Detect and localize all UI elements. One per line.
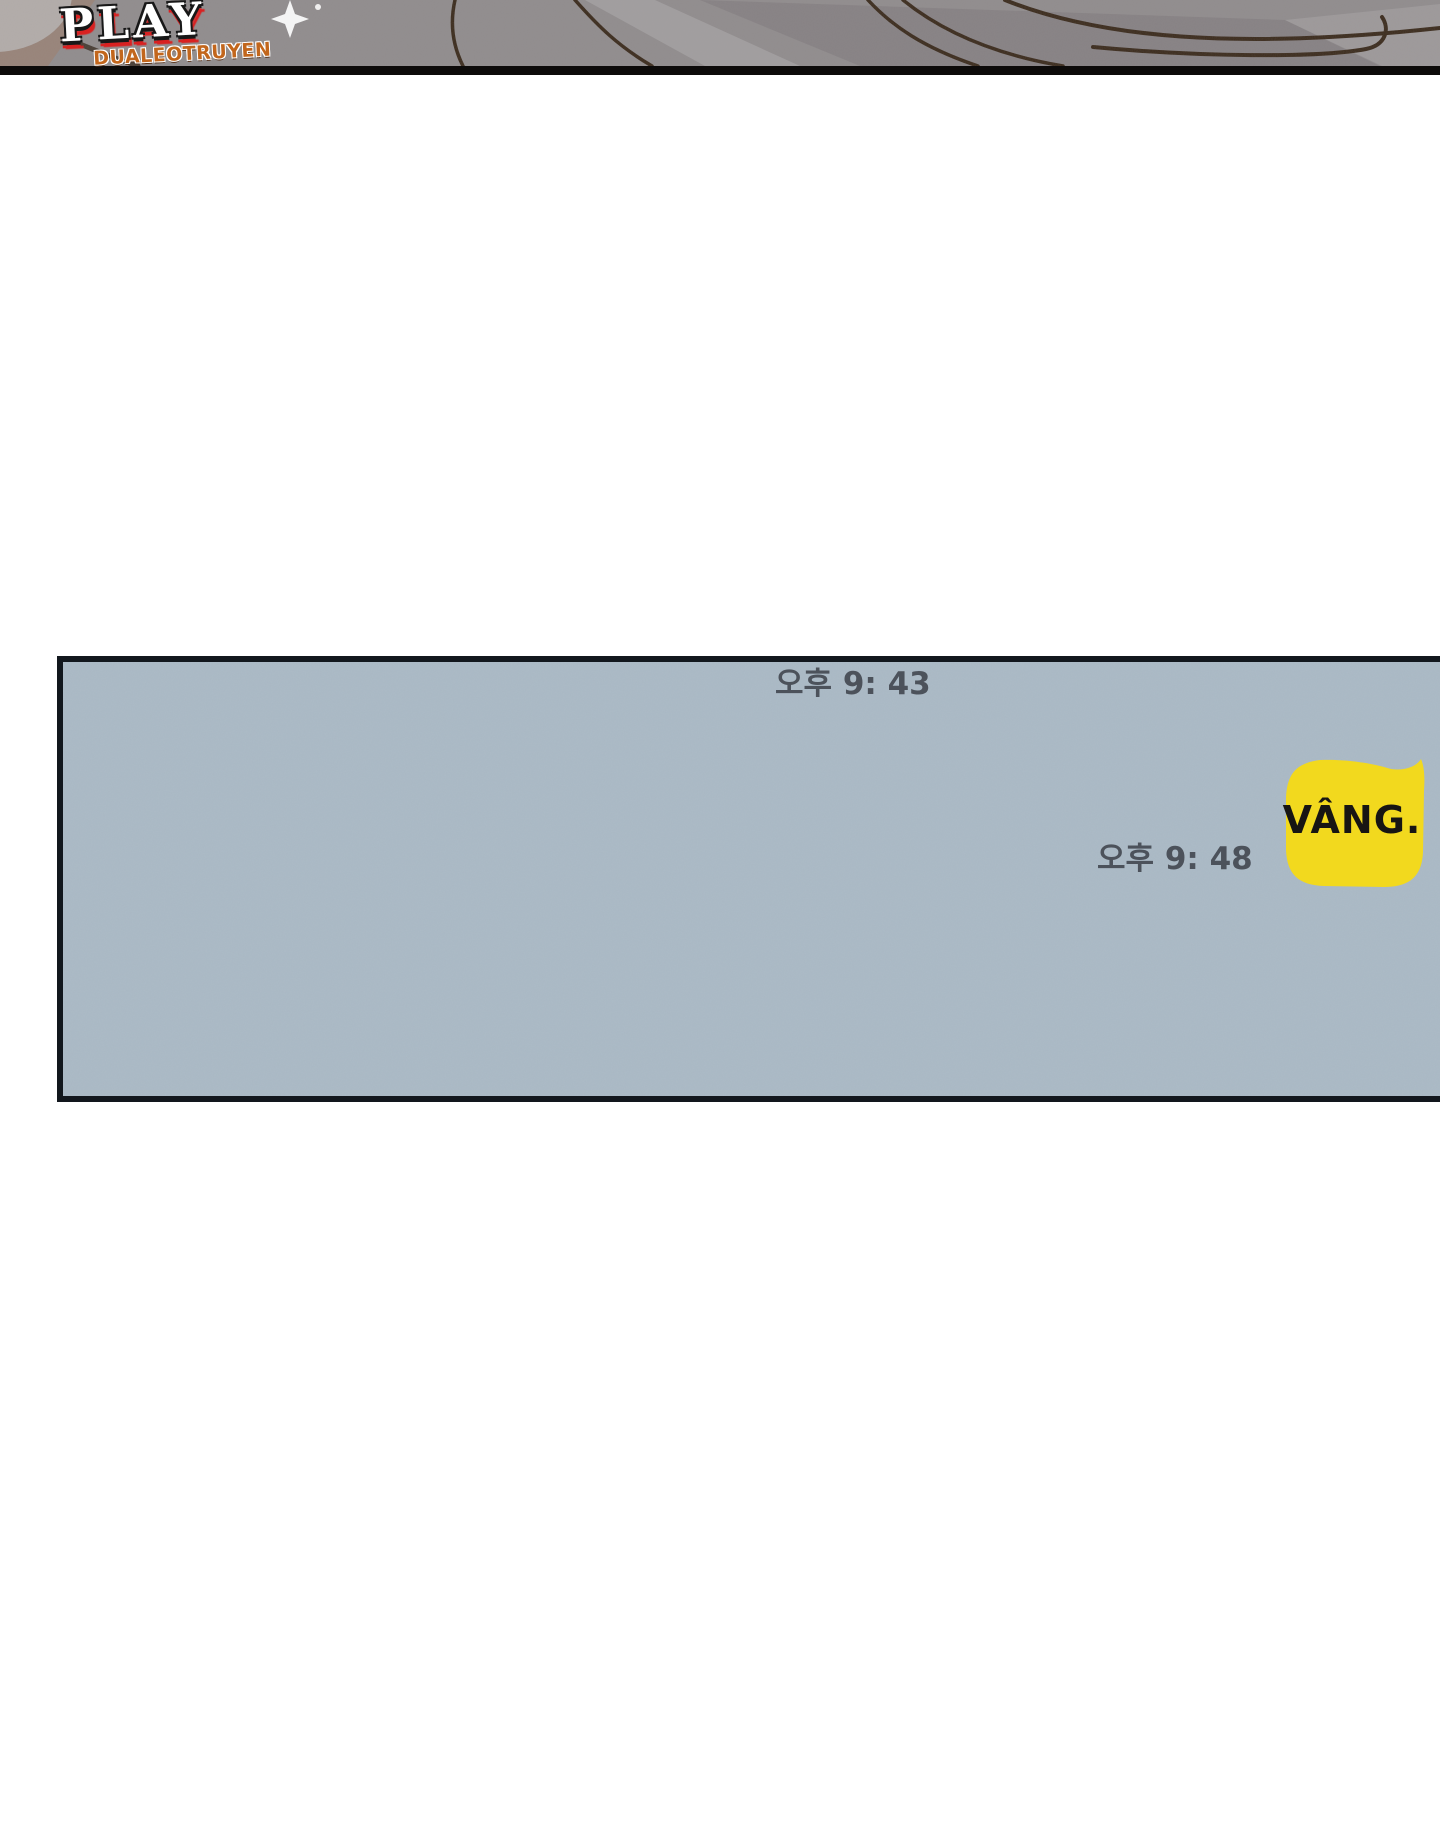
message-text: VÂNG. — [1282, 800, 1422, 840]
chat-panel: 오후 9: 43 VÂNG. 오후 9: 48 — [57, 656, 1440, 1102]
timestamp-1: 오후 9: 43 — [775, 666, 931, 702]
message-bubble: VÂNG. — [1282, 754, 1428, 890]
site-watermark: PLAY DUALEOTRUYEN — [58, 0, 272, 71]
page: PLAY DUALEOTRUYEN 오후 9: 43 VÂNG. 오후 9: 4… — [0, 0, 1440, 1822]
comic-strip: PLAY DUALEOTRUYEN — [0, 0, 1440, 75]
panel-paper-texture — [63, 662, 1440, 1096]
sparkle-dot-icon — [315, 4, 321, 10]
timestamp-2: 오후 9: 48 — [1097, 841, 1253, 877]
